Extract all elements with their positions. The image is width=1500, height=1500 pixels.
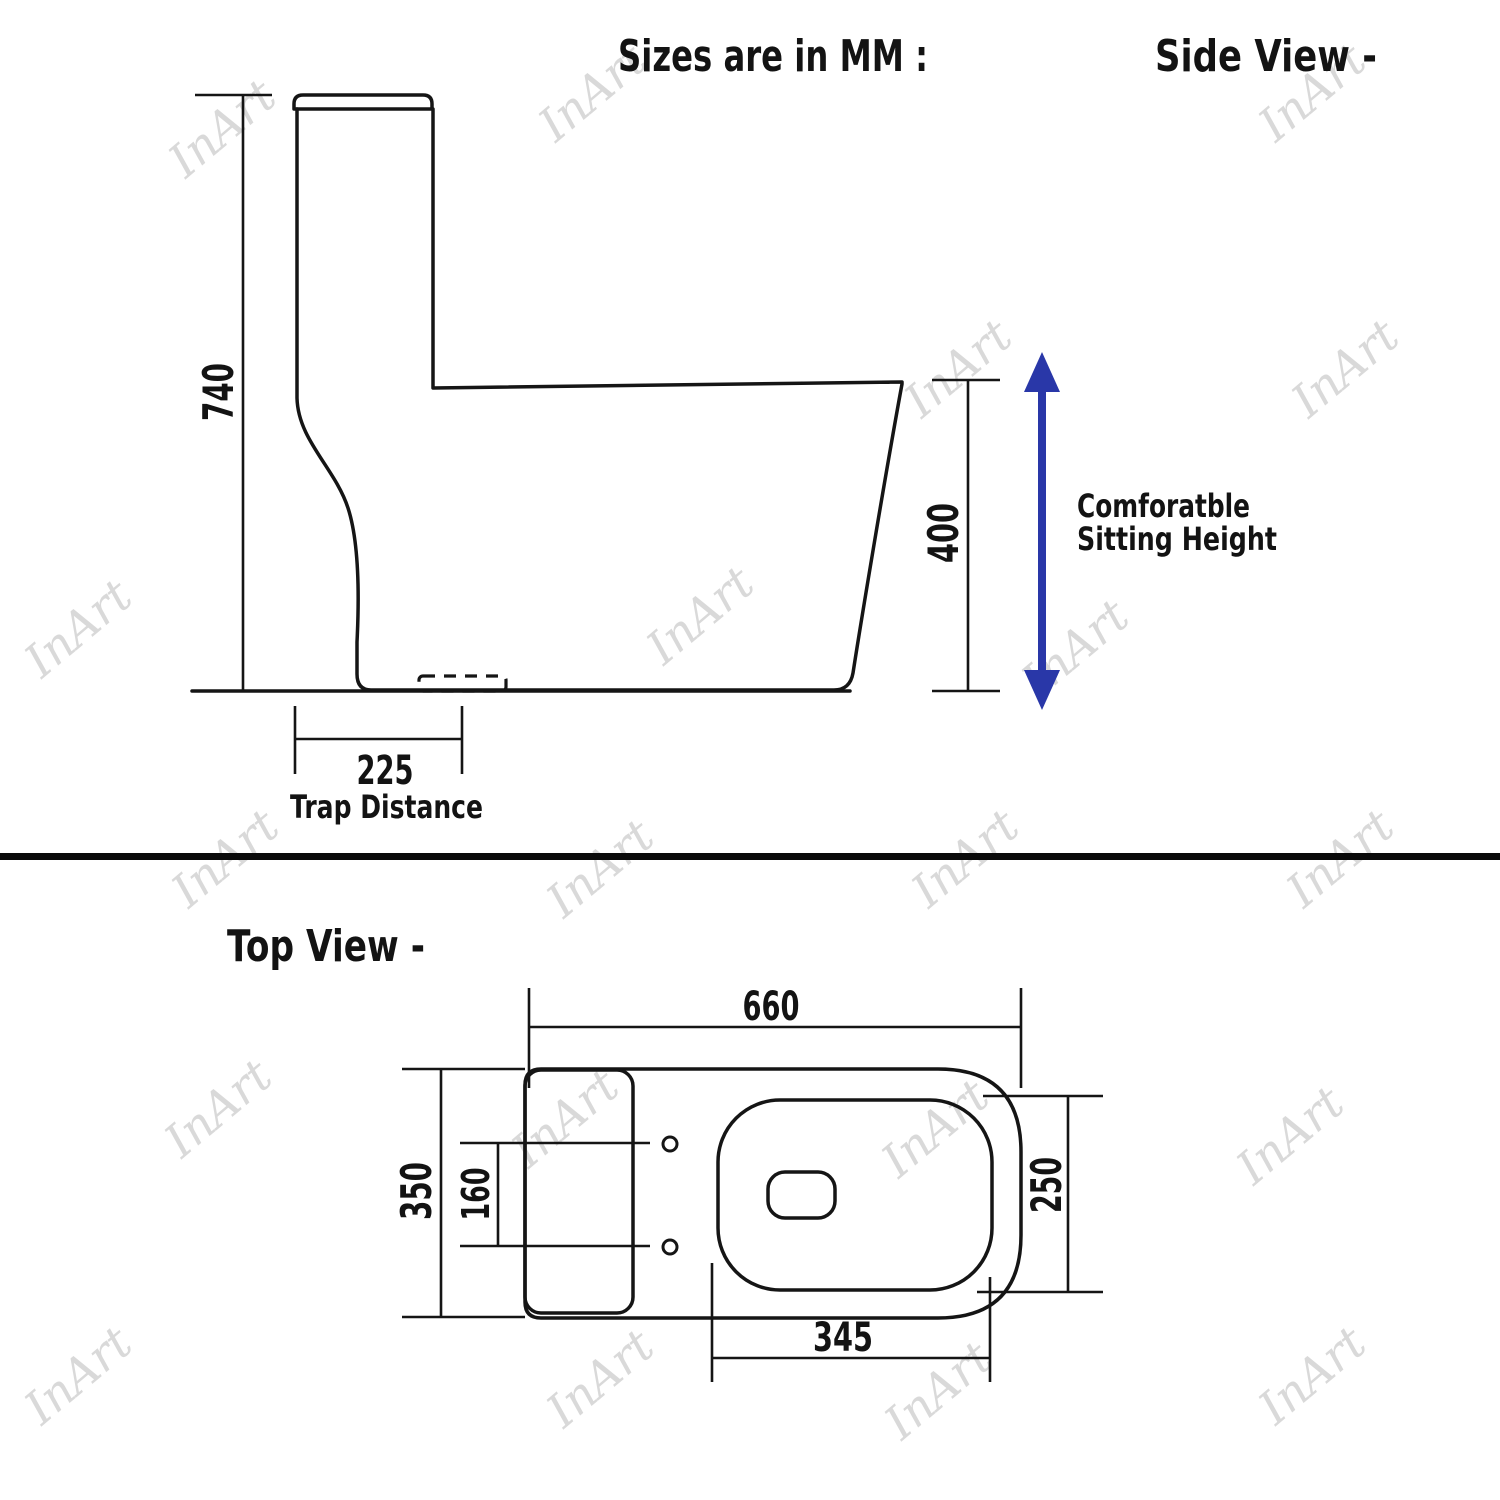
dim-160-label: 160 (454, 1168, 498, 1221)
hinge-hole-bottom (663, 1240, 677, 1254)
sitting-height-arrow (1024, 352, 1060, 710)
tank-top-outline (525, 1070, 633, 1313)
hinge-hole-top (663, 1137, 677, 1151)
flush-opening-outline (768, 1172, 835, 1218)
tank-lid-outline (294, 95, 432, 109)
side-view-dimensions: 740 400 225 Trap Distance Comforatble Si… (194, 95, 1277, 826)
diagram-canvas: InArtInArtInArtInArtInArtInArtInArtInArt… (0, 0, 1500, 1500)
side-view-title: Side View - (1155, 31, 1377, 82)
dim-250-label: 250 (1022, 1157, 1071, 1213)
sizes-note-title: Sizes are in MM : (618, 31, 928, 82)
toilet-dimension-diagram: Sizes are in MM : Side View - Top View -… (0, 0, 1500, 1500)
arrow-down-icon (1024, 670, 1060, 710)
dim-345-label: 345 (813, 1315, 873, 1361)
dim-660-label: 660 (743, 984, 800, 1030)
comfort-note-line2: Sitting Height (1077, 520, 1277, 558)
trap-distance-label: Trap Distance (290, 788, 483, 826)
dim-740-label: 740 (194, 363, 243, 421)
arrow-up-icon (1024, 352, 1060, 392)
seat-outline (718, 1100, 992, 1290)
dim-400-label: 400 (919, 503, 968, 563)
top-view-title: Top View - (227, 921, 425, 972)
section-divider (0, 853, 1500, 860)
dim-350-label: 350 (392, 1162, 441, 1220)
top-view-dimensions: 660 350 160 250 345 (392, 984, 1103, 1382)
top-view-drawing (525, 1069, 1021, 1318)
toilet-side-outline (297, 109, 902, 690)
side-view-drawing (192, 95, 902, 691)
toilet-top-outline (525, 1069, 1021, 1318)
